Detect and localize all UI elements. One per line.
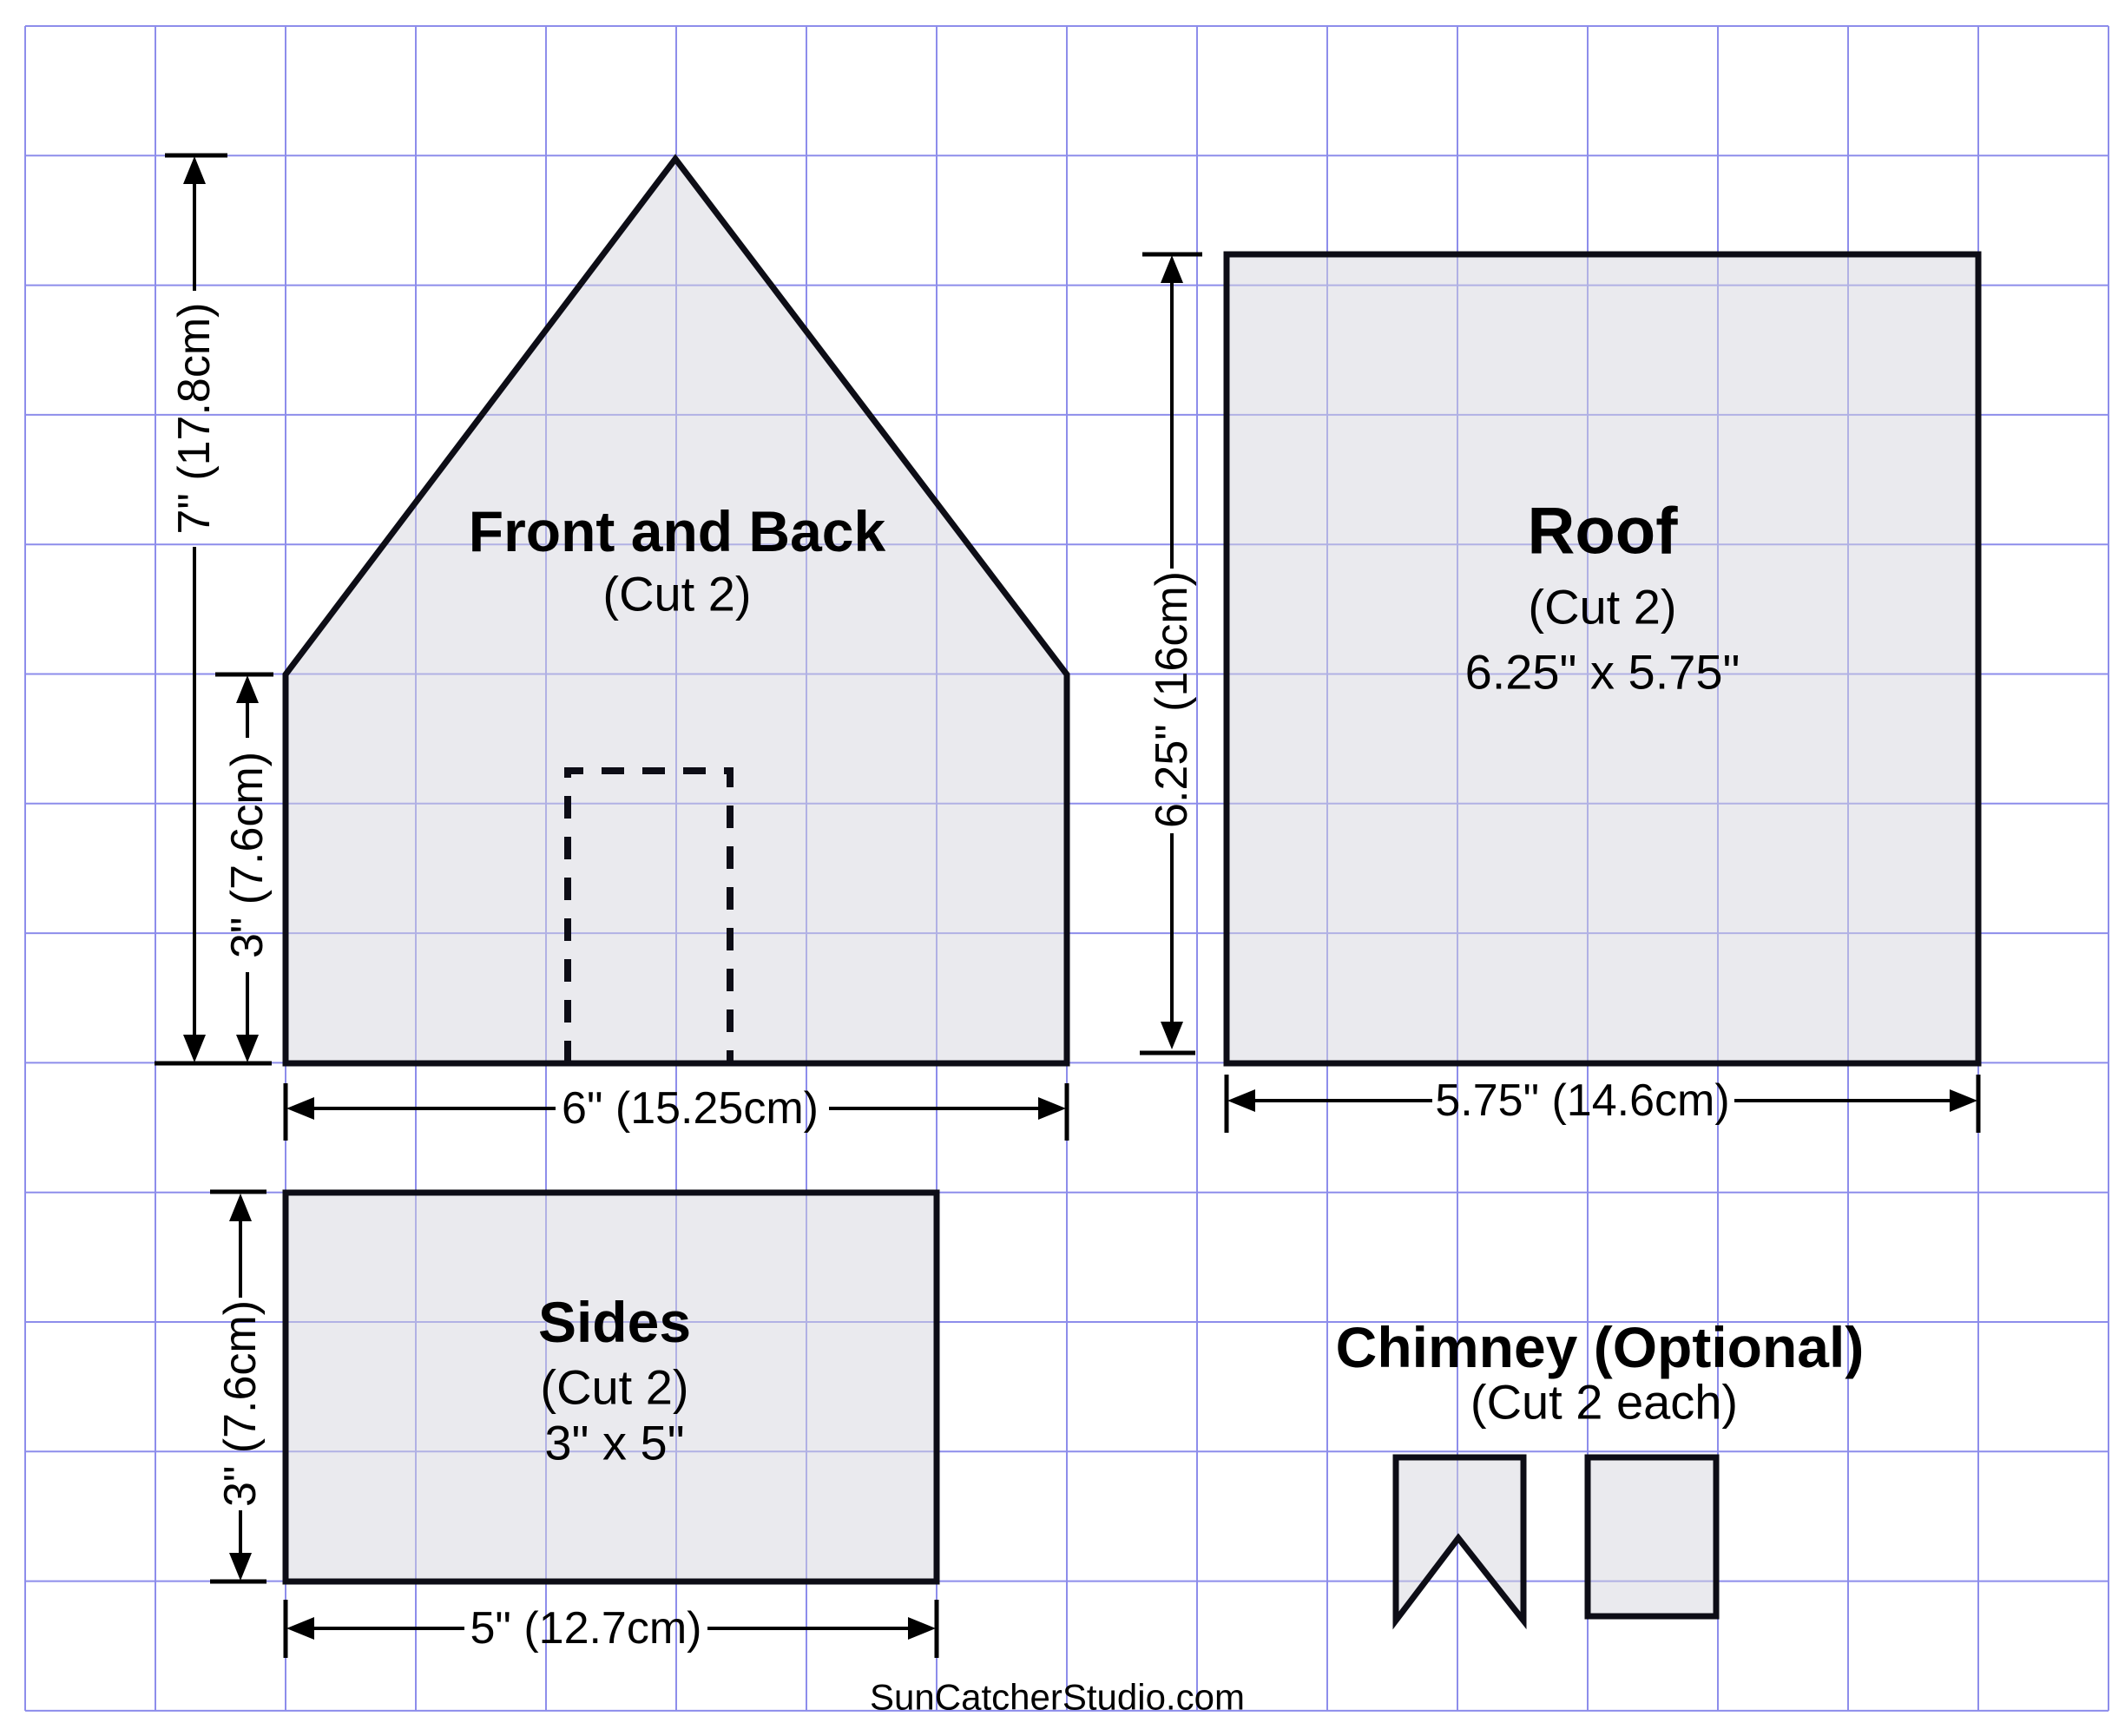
dim-label-sides-height: 3" (7.6cm) [215,1300,266,1507]
dim-roof-width: 5.75" (14.6cm) [1227,1075,1978,1133]
dim-arrowhead-right [1950,1089,1977,1112]
dim-label-roof-height: 6.25" (16cm) [1147,571,1197,828]
sides-label-2: 3" x 5" [544,1416,684,1470]
gingerbread-house-pattern-canvas: 7" (17.8cm)3" (7.6cm)6" (15.25cm)6.25" (… [0,0,2125,1736]
dim-arrowhead-up [183,156,206,184]
dim-arrowhead-down [183,1035,206,1062]
sides-label-1: (Cut 2) [540,1360,688,1415]
dim-label-house-height: 7" (17.8cm) [169,303,220,535]
dim-house-wall-height: 3" (7.6cm) [215,674,273,1062]
dim-sides-width: 5" (12.7cm) [286,1600,937,1658]
dim-sides-height: 3" (7.6cm) [210,1192,266,1581]
dim-label-house-wall-height: 3" (7.6cm) [222,752,273,958]
footer-watermark: SunCatcherStudio.com [870,1677,1245,1718]
dim-arrowhead-down [229,1553,252,1581]
roof-label-1: (Cut 2) [1528,580,1676,635]
dim-arrowhead-right [1038,1097,1066,1120]
dim-arrowhead-left [1227,1089,1255,1112]
chimney-caption-label-0: Chimney (Optional) [1336,1315,1865,1379]
front-back-label-1: (Cut 2) [602,567,751,621]
dim-arrowhead-up [229,1193,252,1221]
dim-arrowhead-left [286,1617,314,1640]
roof-label-2: 6.25" x 5.75" [1465,645,1740,700]
dim-arrowhead-down [236,1035,259,1062]
chimney-right-piece [1588,1457,1716,1616]
dim-arrowhead-up [1161,255,1183,283]
pattern-page: 7" (17.8cm)3" (7.6cm)6" (15.25cm)6.25" (… [0,0,2125,1736]
dim-arrowhead-right [908,1617,936,1640]
dim-house-width: 6" (15.25cm) [286,1083,1067,1141]
roof-label-0: Roof [1527,495,1678,569]
dim-label-house-width: 6" (15.25cm) [562,1083,819,1134]
dim-label-sides-width: 5" (12.7cm) [470,1603,702,1654]
dim-label-roof-width: 5.75" (14.6cm) [1435,1075,1729,1126]
chimney-left-piece [1396,1457,1523,1621]
dim-arrowhead-left [286,1097,314,1120]
chimney-caption-label-1: (Cut 2 each) [1470,1375,1738,1430]
dim-arrowhead-up [236,675,259,703]
front-back-label-0: Front and Back [469,499,886,563]
dim-arrowhead-down [1161,1022,1183,1049]
sides-label-0: Sides [538,1290,691,1354]
